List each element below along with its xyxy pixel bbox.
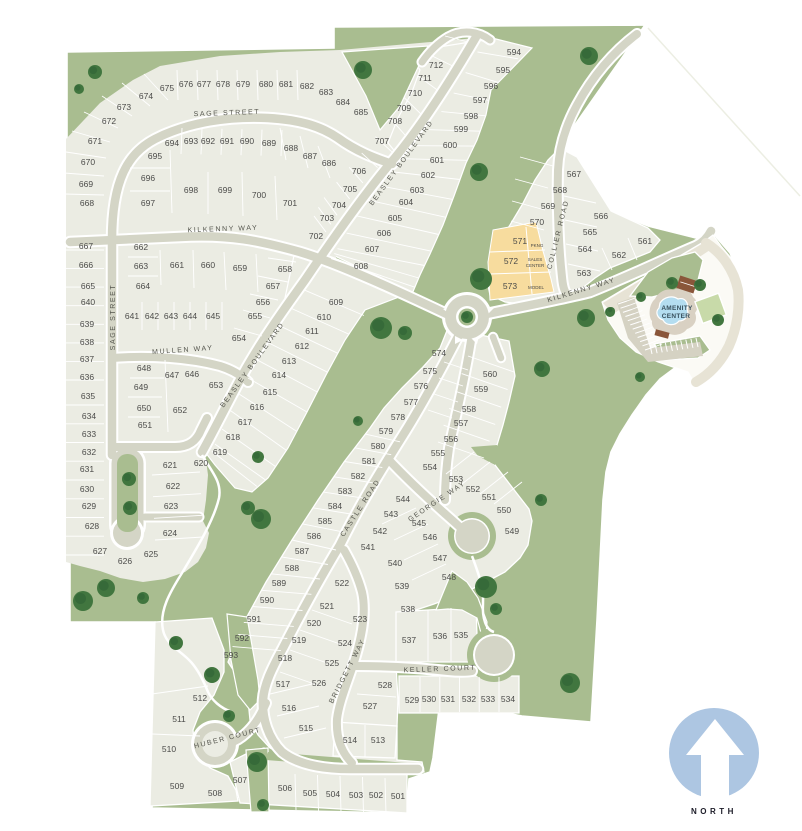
- svg-text:550: 550: [497, 505, 511, 515]
- svg-text:667: 667: [79, 241, 93, 251]
- svg-text:636: 636: [80, 372, 94, 382]
- svg-text:PKNG: PKNG: [531, 243, 544, 248]
- svg-text:664: 664: [136, 281, 150, 291]
- svg-text:554: 554: [423, 462, 437, 472]
- svg-text:530: 530: [422, 694, 436, 704]
- svg-text:512: 512: [193, 693, 207, 703]
- svg-text:643: 643: [164, 311, 178, 321]
- svg-text:624: 624: [163, 528, 177, 538]
- svg-text:535: 535: [454, 630, 468, 640]
- svg-text:706: 706: [352, 166, 366, 176]
- svg-text:599: 599: [454, 124, 468, 134]
- svg-text:710: 710: [408, 88, 422, 98]
- svg-text:641: 641: [125, 311, 139, 321]
- svg-text:558: 558: [462, 404, 476, 414]
- svg-text:598: 598: [464, 111, 478, 121]
- svg-text:622: 622: [166, 481, 180, 491]
- svg-text:546: 546: [423, 532, 437, 542]
- svg-text:637: 637: [80, 354, 94, 364]
- svg-text:663: 663: [134, 261, 148, 271]
- svg-text:549: 549: [505, 526, 519, 536]
- svg-text:514: 514: [343, 735, 357, 745]
- svg-text:697: 697: [141, 198, 155, 208]
- svg-text:670: 670: [81, 157, 95, 167]
- svg-text:684: 684: [336, 97, 350, 107]
- svg-text:634: 634: [82, 411, 96, 421]
- svg-text:679: 679: [236, 79, 250, 89]
- svg-text:681: 681: [279, 79, 293, 89]
- svg-text:707: 707: [375, 136, 389, 146]
- svg-text:540: 540: [388, 558, 402, 568]
- svg-text:594: 594: [507, 47, 521, 57]
- svg-text:628: 628: [85, 521, 99, 531]
- svg-text:574: 574: [432, 348, 446, 358]
- svg-text:541: 541: [361, 542, 375, 552]
- svg-text:587: 587: [295, 546, 309, 556]
- svg-text:532: 532: [462, 694, 476, 704]
- svg-text:689: 689: [262, 138, 276, 148]
- svg-text:567: 567: [567, 169, 581, 179]
- svg-text:712: 712: [429, 60, 443, 70]
- svg-text:612: 612: [295, 341, 309, 351]
- svg-text:579: 579: [379, 426, 393, 436]
- svg-text:614: 614: [272, 370, 286, 380]
- svg-text:560: 560: [483, 369, 497, 379]
- svg-text:693: 693: [184, 136, 198, 146]
- svg-text:519: 519: [292, 635, 306, 645]
- svg-text:665: 665: [81, 281, 95, 291]
- svg-text:527: 527: [363, 701, 377, 711]
- svg-text:585: 585: [318, 516, 332, 526]
- svg-text:513: 513: [371, 735, 385, 745]
- svg-text:559: 559: [474, 384, 488, 394]
- svg-text:646: 646: [185, 369, 199, 379]
- svg-text:502: 502: [369, 790, 383, 800]
- svg-text:SALES: SALES: [528, 257, 543, 262]
- svg-text:529: 529: [405, 695, 419, 705]
- svg-text:703: 703: [320, 213, 334, 223]
- svg-text:556: 556: [444, 434, 458, 444]
- svg-text:704: 704: [332, 200, 346, 210]
- svg-text:686: 686: [322, 158, 336, 168]
- svg-text:565: 565: [583, 227, 597, 237]
- svg-text:591: 591: [247, 614, 261, 624]
- svg-text:511: 511: [172, 714, 186, 724]
- svg-text:508: 508: [208, 788, 222, 798]
- svg-text:687: 687: [303, 151, 317, 161]
- svg-text:620: 620: [194, 458, 208, 468]
- svg-text:632: 632: [82, 447, 96, 457]
- svg-text:677: 677: [197, 79, 211, 89]
- svg-text:701: 701: [283, 198, 297, 208]
- svg-text:692: 692: [201, 136, 215, 146]
- svg-text:647: 647: [165, 370, 179, 380]
- svg-text:555: 555: [431, 448, 445, 458]
- svg-text:648: 648: [137, 363, 151, 373]
- svg-text:543: 543: [384, 509, 398, 519]
- svg-text:568: 568: [553, 185, 567, 195]
- svg-text:613: 613: [282, 356, 296, 366]
- svg-text:517: 517: [276, 679, 290, 689]
- svg-text:553: 553: [449, 474, 463, 484]
- svg-text:668: 668: [80, 198, 94, 208]
- svg-text:650: 650: [137, 403, 151, 413]
- svg-text:688: 688: [284, 143, 298, 153]
- svg-text:586: 586: [307, 531, 321, 541]
- svg-text:507: 507: [233, 775, 247, 785]
- svg-text:678: 678: [216, 79, 230, 89]
- svg-text:577: 577: [404, 397, 418, 407]
- svg-text:661: 661: [170, 260, 184, 270]
- svg-text:669: 669: [79, 179, 93, 189]
- svg-text:711: 711: [418, 73, 432, 83]
- svg-text:571: 571: [513, 236, 527, 246]
- svg-text:525: 525: [325, 658, 339, 668]
- svg-text:660: 660: [201, 260, 215, 270]
- svg-text:633: 633: [82, 429, 96, 439]
- svg-text:690: 690: [240, 136, 254, 146]
- svg-text:526: 526: [312, 678, 326, 688]
- svg-text:564: 564: [578, 244, 592, 254]
- svg-text:551: 551: [482, 492, 496, 502]
- svg-text:611: 611: [305, 326, 319, 336]
- svg-text:691: 691: [220, 136, 234, 146]
- svg-text:538: 538: [401, 604, 415, 614]
- svg-text:572: 572: [504, 256, 518, 266]
- svg-text:521: 521: [320, 601, 334, 611]
- svg-text:625: 625: [144, 549, 158, 559]
- svg-text:603: 603: [410, 185, 424, 195]
- svg-text:608: 608: [354, 261, 368, 271]
- svg-text:583: 583: [338, 486, 352, 496]
- svg-text:694: 694: [165, 138, 179, 148]
- svg-text:621: 621: [163, 460, 177, 470]
- svg-text:542: 542: [373, 526, 387, 536]
- svg-text:596: 596: [484, 81, 498, 91]
- svg-text:606: 606: [377, 228, 391, 238]
- svg-text:682: 682: [300, 81, 314, 91]
- svg-text:548: 548: [442, 572, 456, 582]
- svg-text:531: 531: [441, 694, 455, 704]
- svg-text:CENTER: CENTER: [526, 263, 545, 268]
- svg-text:569: 569: [541, 201, 555, 211]
- svg-text:683: 683: [319, 87, 333, 97]
- svg-text:695: 695: [148, 151, 162, 161]
- svg-text:503: 503: [349, 790, 363, 800]
- svg-text:699: 699: [218, 185, 232, 195]
- svg-text:578: 578: [391, 412, 405, 422]
- svg-text:557: 557: [454, 418, 468, 428]
- svg-text:NORTH: NORTH: [691, 807, 737, 816]
- svg-text:575: 575: [423, 366, 437, 376]
- svg-text:685: 685: [354, 107, 368, 117]
- svg-text:642: 642: [145, 311, 159, 321]
- svg-text:653: 653: [209, 380, 223, 390]
- svg-text:576: 576: [414, 381, 428, 391]
- svg-text:580: 580: [371, 441, 385, 451]
- svg-text:639: 639: [80, 319, 94, 329]
- svg-text:602: 602: [421, 170, 435, 180]
- svg-text:705: 705: [343, 184, 357, 194]
- svg-text:605: 605: [388, 213, 402, 223]
- svg-text:651: 651: [138, 420, 152, 430]
- svg-text:520: 520: [307, 618, 321, 628]
- svg-text:566: 566: [594, 211, 608, 221]
- svg-text:649: 649: [134, 382, 148, 392]
- svg-text:547: 547: [433, 553, 447, 563]
- svg-text:SAGE STREET: SAGE STREET: [110, 284, 117, 351]
- svg-text:671: 671: [88, 136, 102, 146]
- svg-text:629: 629: [82, 501, 96, 511]
- svg-text:615: 615: [263, 387, 277, 397]
- svg-text:631: 631: [80, 464, 94, 474]
- svg-text:510: 510: [162, 744, 176, 754]
- svg-text:644: 644: [183, 311, 197, 321]
- svg-text:588: 588: [285, 563, 299, 573]
- svg-text:652: 652: [173, 405, 187, 415]
- svg-text:518: 518: [278, 653, 292, 663]
- svg-text:600: 600: [443, 140, 457, 150]
- svg-text:581: 581: [362, 456, 376, 466]
- svg-text:505: 505: [303, 788, 317, 798]
- svg-text:597: 597: [473, 95, 487, 105]
- svg-text:662: 662: [134, 242, 148, 252]
- svg-text:533: 533: [481, 694, 495, 704]
- svg-text:601: 601: [430, 155, 444, 165]
- svg-text:623: 623: [164, 501, 178, 511]
- svg-text:700: 700: [252, 190, 266, 200]
- svg-text:582: 582: [351, 471, 365, 481]
- svg-text:593: 593: [224, 650, 238, 660]
- svg-text:618: 618: [226, 432, 240, 442]
- svg-text:562: 562: [612, 250, 626, 260]
- svg-text:528: 528: [378, 680, 392, 690]
- svg-text:626: 626: [118, 556, 132, 566]
- svg-text:630: 630: [80, 484, 94, 494]
- svg-text:656: 656: [256, 297, 270, 307]
- svg-text:675: 675: [160, 83, 174, 93]
- svg-text:537: 537: [402, 635, 416, 645]
- svg-text:609: 609: [329, 297, 343, 307]
- svg-text:680: 680: [259, 79, 273, 89]
- svg-text:698: 698: [184, 185, 198, 195]
- svg-text:673: 673: [117, 102, 131, 112]
- svg-text:552: 552: [466, 484, 480, 494]
- svg-text:544: 544: [396, 494, 410, 504]
- svg-text:570: 570: [530, 217, 544, 227]
- svg-text:635: 635: [81, 391, 95, 401]
- svg-text:573: 573: [503, 281, 517, 291]
- svg-text:658: 658: [278, 264, 292, 274]
- svg-text:501: 501: [391, 791, 405, 801]
- svg-text:584: 584: [328, 501, 342, 511]
- svg-text:523: 523: [353, 614, 367, 624]
- svg-text:545: 545: [412, 518, 426, 528]
- svg-text:709: 709: [397, 103, 411, 113]
- svg-text:616: 616: [250, 402, 264, 412]
- svg-text:659: 659: [233, 263, 247, 273]
- svg-text:506: 506: [278, 783, 292, 793]
- svg-text:592: 592: [235, 633, 249, 643]
- svg-text:561: 561: [638, 236, 652, 246]
- svg-text:522: 522: [335, 578, 349, 588]
- svg-text:676: 676: [179, 79, 193, 89]
- svg-text:627: 627: [93, 546, 107, 556]
- svg-text:595: 595: [496, 65, 510, 75]
- svg-text:645: 645: [206, 311, 220, 321]
- svg-text:638: 638: [80, 337, 94, 347]
- svg-text:617: 617: [238, 417, 252, 427]
- svg-text:708: 708: [388, 116, 402, 126]
- svg-text:654: 654: [232, 333, 246, 343]
- svg-text:539: 539: [395, 581, 409, 591]
- svg-text:655: 655: [248, 311, 262, 321]
- svg-text:515: 515: [299, 723, 313, 733]
- svg-text:504: 504: [326, 789, 340, 799]
- svg-text:CENTER: CENTER: [662, 313, 691, 320]
- svg-text:607: 607: [365, 244, 379, 254]
- svg-text:524: 524: [338, 638, 352, 648]
- svg-text:672: 672: [102, 116, 116, 126]
- svg-text:516: 516: [282, 703, 296, 713]
- svg-text:696: 696: [141, 173, 155, 183]
- svg-text:604: 604: [399, 197, 413, 207]
- svg-text:640: 640: [81, 297, 95, 307]
- svg-text:674: 674: [139, 91, 153, 101]
- svg-text:610: 610: [317, 312, 331, 322]
- svg-text:589: 589: [272, 578, 286, 588]
- svg-text:619: 619: [213, 447, 227, 457]
- svg-text:657: 657: [266, 281, 280, 291]
- svg-text:702: 702: [309, 231, 323, 241]
- svg-text:MODEL: MODEL: [528, 285, 545, 290]
- svg-text:AMENITY: AMENITY: [661, 305, 693, 312]
- svg-text:666: 666: [79, 260, 93, 270]
- svg-text:563: 563: [577, 268, 591, 278]
- svg-text:509: 509: [170, 781, 184, 791]
- svg-text:590: 590: [260, 595, 274, 605]
- svg-text:534: 534: [501, 694, 515, 704]
- svg-text:536: 536: [433, 631, 447, 641]
